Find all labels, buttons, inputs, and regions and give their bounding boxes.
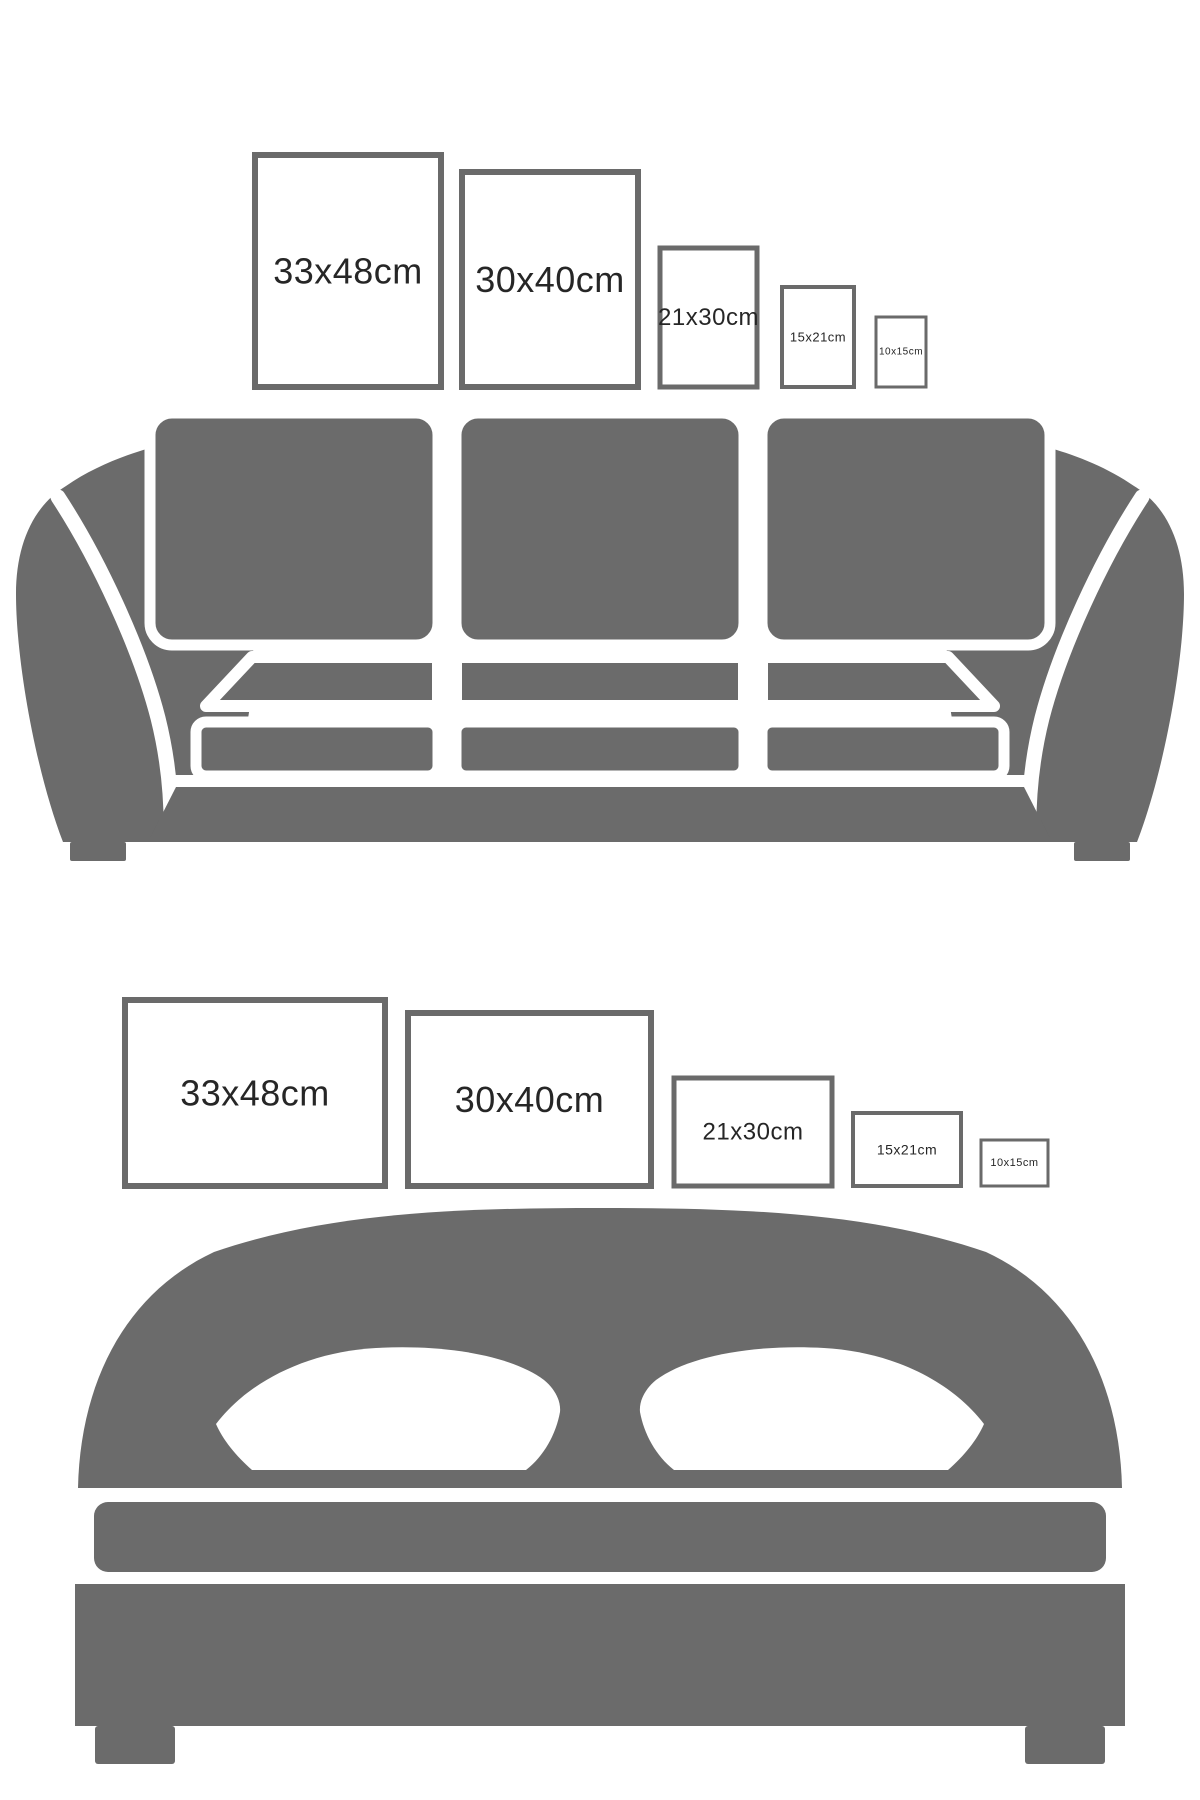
bed-left-foot	[95, 1726, 175, 1764]
size-frame-sofa-30x40cm: 30x40cm	[462, 172, 638, 387]
bed-right-foot	[1025, 1726, 1105, 1764]
sofa-silhouette	[16, 413, 1184, 861]
bed-mattress	[94, 1502, 1106, 1572]
size-frame-sofa-15x21cm: 15x21cm	[782, 287, 854, 387]
sofa-deck-right	[762, 657, 994, 706]
frame-size-label: 33x48cm	[273, 251, 423, 292]
size-frame-sofa-10x15cm: 10x15cm	[876, 317, 926, 387]
frame-size-label: 10x15cm	[879, 347, 923, 358]
sofa-left-foot	[70, 842, 126, 861]
sofa-seat-cushion-middle	[456, 722, 744, 776]
frame-size-label: 30x40cm	[455, 1079, 605, 1120]
frame-size-label: 21x30cm	[703, 1119, 804, 1146]
sofa-right-foot	[1074, 842, 1130, 861]
bed-silhouette	[75, 1208, 1125, 1764]
size-guide-page: 33x48cm30x40cm21x30cm15x21cm10x15cm	[0, 0, 1200, 1800]
size-frame-sofa-33x48cm: 33x48cm	[255, 155, 441, 387]
size-frame-bed-10x15cm: 10x15cm	[981, 1140, 1048, 1186]
bed-base	[75, 1584, 1125, 1726]
sofa-base	[148, 787, 1052, 842]
sofa-seat-cushion-right	[762, 722, 1004, 776]
sofa-deck-middle	[456, 657, 744, 706]
sofa-seat-cushion-left	[196, 722, 438, 776]
size-frame-bed-30x40cm: 30x40cm	[408, 1013, 651, 1186]
size-guide-illustration: 33x48cm30x40cm21x30cm15x21cm10x15cm	[0, 0, 1200, 1800]
sofa-back-cushion-right	[762, 413, 1050, 645]
size-frame-bed-21x30cm: 21x30cm	[674, 1078, 832, 1186]
frame-size-label: 21x30cm	[658, 304, 759, 331]
sofa-back-cushion-left	[150, 413, 438, 645]
frame-size-label: 30x40cm	[475, 259, 625, 300]
frame-size-label: 15x21cm	[877, 1142, 937, 1158]
sofa-back-cushion-middle	[456, 413, 744, 645]
frame-size-label: 33x48cm	[180, 1073, 330, 1114]
bed-frames-row: 33x48cm30x40cm21x30cm15x21cm10x15cm	[125, 1000, 1048, 1186]
size-frame-sofa-21x30cm: 21x30cm	[658, 248, 759, 387]
sofa-frames-row: 33x48cm30x40cm21x30cm15x21cm10x15cm	[255, 155, 926, 387]
frame-size-label: 15x21cm	[790, 330, 846, 345]
sofa-deck-left	[206, 657, 438, 706]
frame-size-label: 10x15cm	[990, 1157, 1038, 1169]
size-frame-bed-33x48cm: 33x48cm	[125, 1000, 385, 1186]
size-frame-bed-15x21cm: 15x21cm	[853, 1113, 961, 1186]
